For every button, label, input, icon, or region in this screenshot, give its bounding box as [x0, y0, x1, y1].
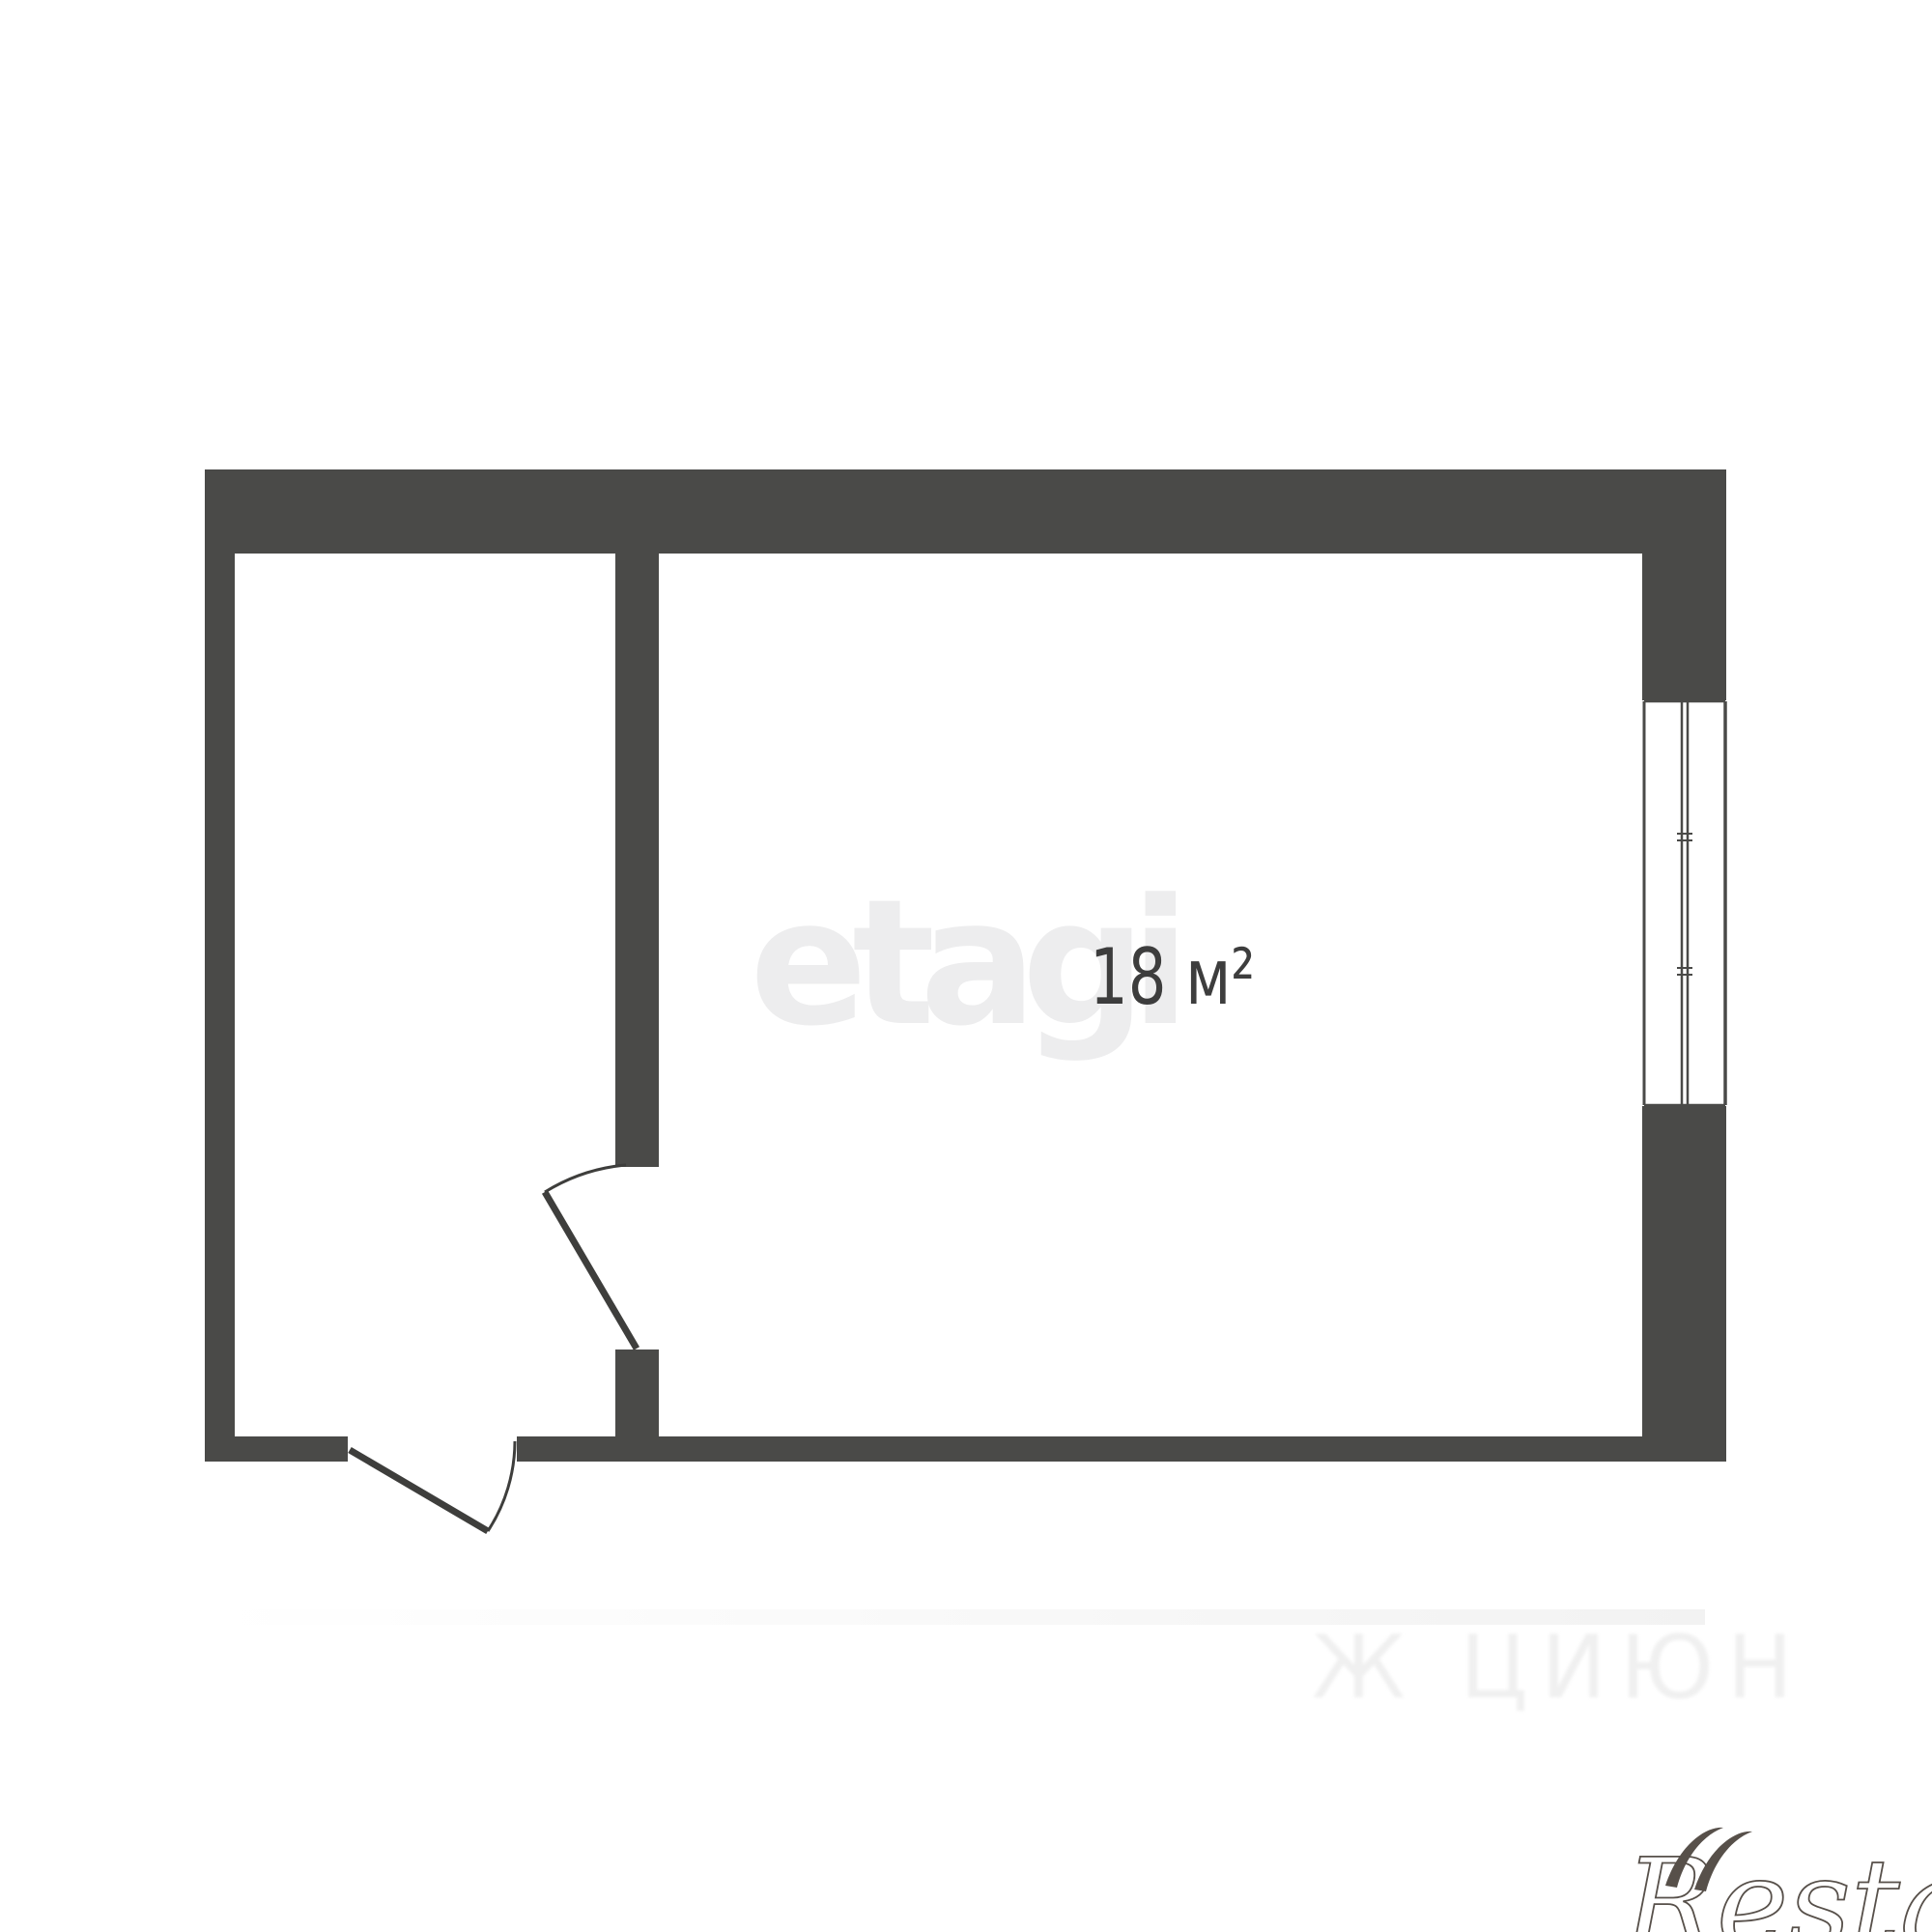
interior-door-leaf: [545, 1192, 637, 1349]
entry-door-leaf: [350, 1450, 488, 1531]
restate-logo-text: Restate: [1623, 1833, 1932, 1932]
floor-plan-canvas: Ж ЦИЮН etagi 18 м² Restate: [0, 0, 1932, 1932]
restate-logo: Restate: [1621, 1818, 1932, 1932]
interior-door-swing-arc: [545, 1165, 626, 1192]
entry-door-swing-arc: [488, 1441, 515, 1531]
plan-symbols-layer: [0, 0, 1932, 1932]
window: [1644, 701, 1725, 1105]
